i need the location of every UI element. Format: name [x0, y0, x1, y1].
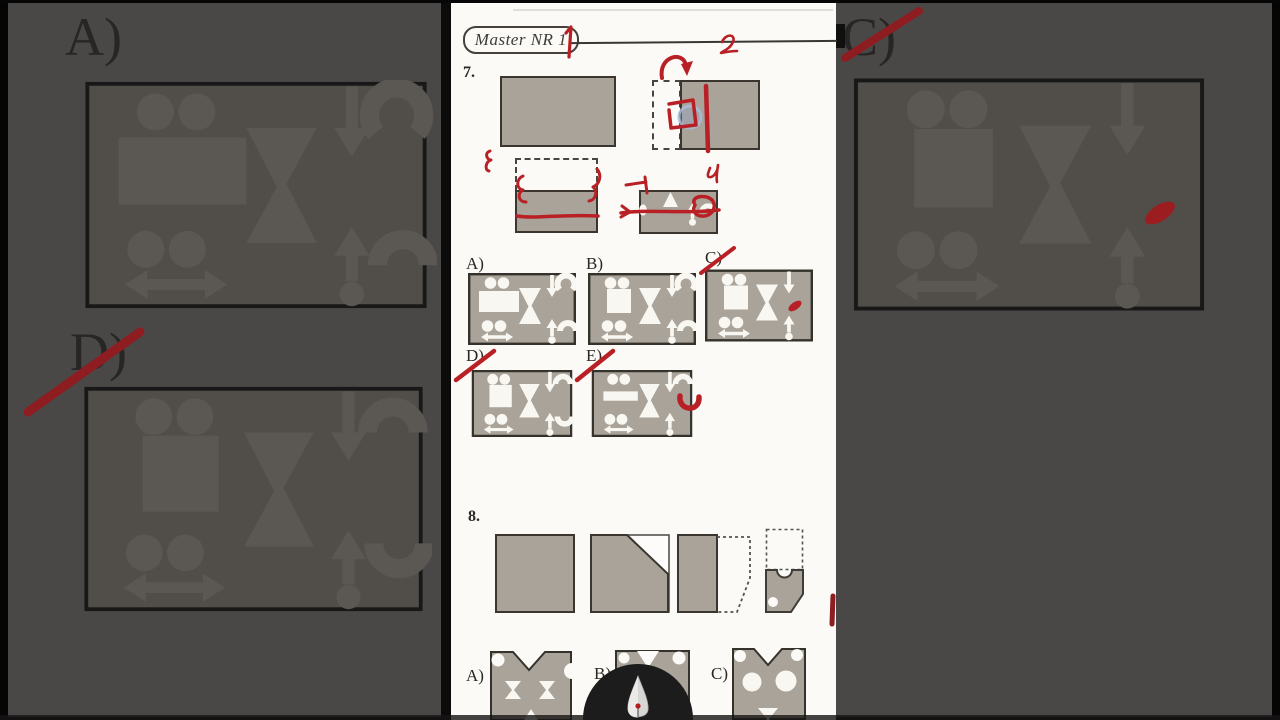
- q8-option-a-label: A): [466, 666, 484, 686]
- hole-cutout-icon: [768, 597, 778, 607]
- q8-figure-1-square: [495, 534, 575, 613]
- page-top-rule: [513, 9, 833, 11]
- background-left-panel: A) D): [8, 3, 441, 717]
- worksheet-page: Master NR 1 7. A) B) C) D) E) 8.: [451, 0, 836, 720]
- q7-option-b-label: B): [586, 254, 603, 274]
- worksheet-title-box: Master NR 1: [463, 26, 579, 54]
- q8-figure-3-half-folded: [677, 533, 754, 613]
- rect-wide-icon: [119, 138, 247, 205]
- bg-option-a-label: A): [65, 10, 122, 64]
- background-right-panel: C): [836, 3, 1272, 717]
- q7-figure-4-strip: [639, 188, 718, 235]
- square-icon: [143, 436, 219, 512]
- q8-figure-2-folded-corner: [590, 534, 670, 613]
- bg-option-d-card: [75, 385, 432, 613]
- pen-nib-breather-hole: [635, 703, 640, 708]
- oval-cutout-icon: [639, 204, 647, 215]
- paper-left-shadow: [441, 0, 451, 720]
- hole-cutout-icon: [743, 673, 762, 692]
- pen-logo: [578, 662, 698, 720]
- q7-figure-3-gray-bottom: [515, 190, 598, 233]
- q7-figure-3-dashed-top: [515, 158, 598, 191]
- rect-wide-icon: [479, 291, 519, 312]
- q7-figure-1-solid-sheet: [500, 76, 616, 147]
- hole-cutout-icon: [492, 654, 505, 667]
- q7-option-a-card: [468, 273, 576, 345]
- hole-cutout-icon: [734, 650, 746, 662]
- q8-figure-4-result: [765, 528, 804, 613]
- bg-option-c-card: [852, 76, 1206, 313]
- q7-figure-2-gray-half: [680, 80, 760, 150]
- square-icon: [724, 286, 748, 310]
- question-8-number: 8.: [468, 508, 480, 526]
- q7-option-d-label: D): [466, 346, 484, 366]
- q7-option-c-card: [705, 268, 813, 343]
- q7-option-a-label: A): [466, 254, 484, 274]
- bar-icon: [603, 391, 637, 400]
- hole-cutout-icon: [791, 649, 803, 661]
- square-icon: [607, 289, 631, 313]
- q7-option-e-label: E): [586, 346, 602, 366]
- worksheet-title: Master NR 1: [475, 30, 567, 50]
- hole-cutout-icon: [776, 671, 797, 692]
- q8-option-c-card: [732, 648, 806, 720]
- q8-option-a-card: [490, 651, 572, 720]
- q7-option-d-card: [468, 370, 576, 437]
- video-frame: A) D) C) Master NR 1 7. A) B): [0, 0, 1280, 720]
- q7-figure-2-dashed-half: [652, 80, 681, 150]
- bg-option-a-card: [75, 80, 437, 310]
- q7-option-b-card: [588, 273, 696, 345]
- q7-option-c-label: C): [705, 248, 722, 268]
- header-rule-line: [571, 40, 837, 44]
- q7-option-e-card: [588, 370, 696, 437]
- square-icon: [489, 385, 511, 407]
- bg-option-c-label: C): [842, 10, 896, 64]
- video-top-edge: [0, 0, 1280, 3]
- square-icon: [914, 129, 993, 208]
- bg-option-d-label: D): [70, 325, 127, 379]
- q8-option-c-label: C): [711, 664, 728, 684]
- question-7-number: 7.: [463, 64, 475, 82]
